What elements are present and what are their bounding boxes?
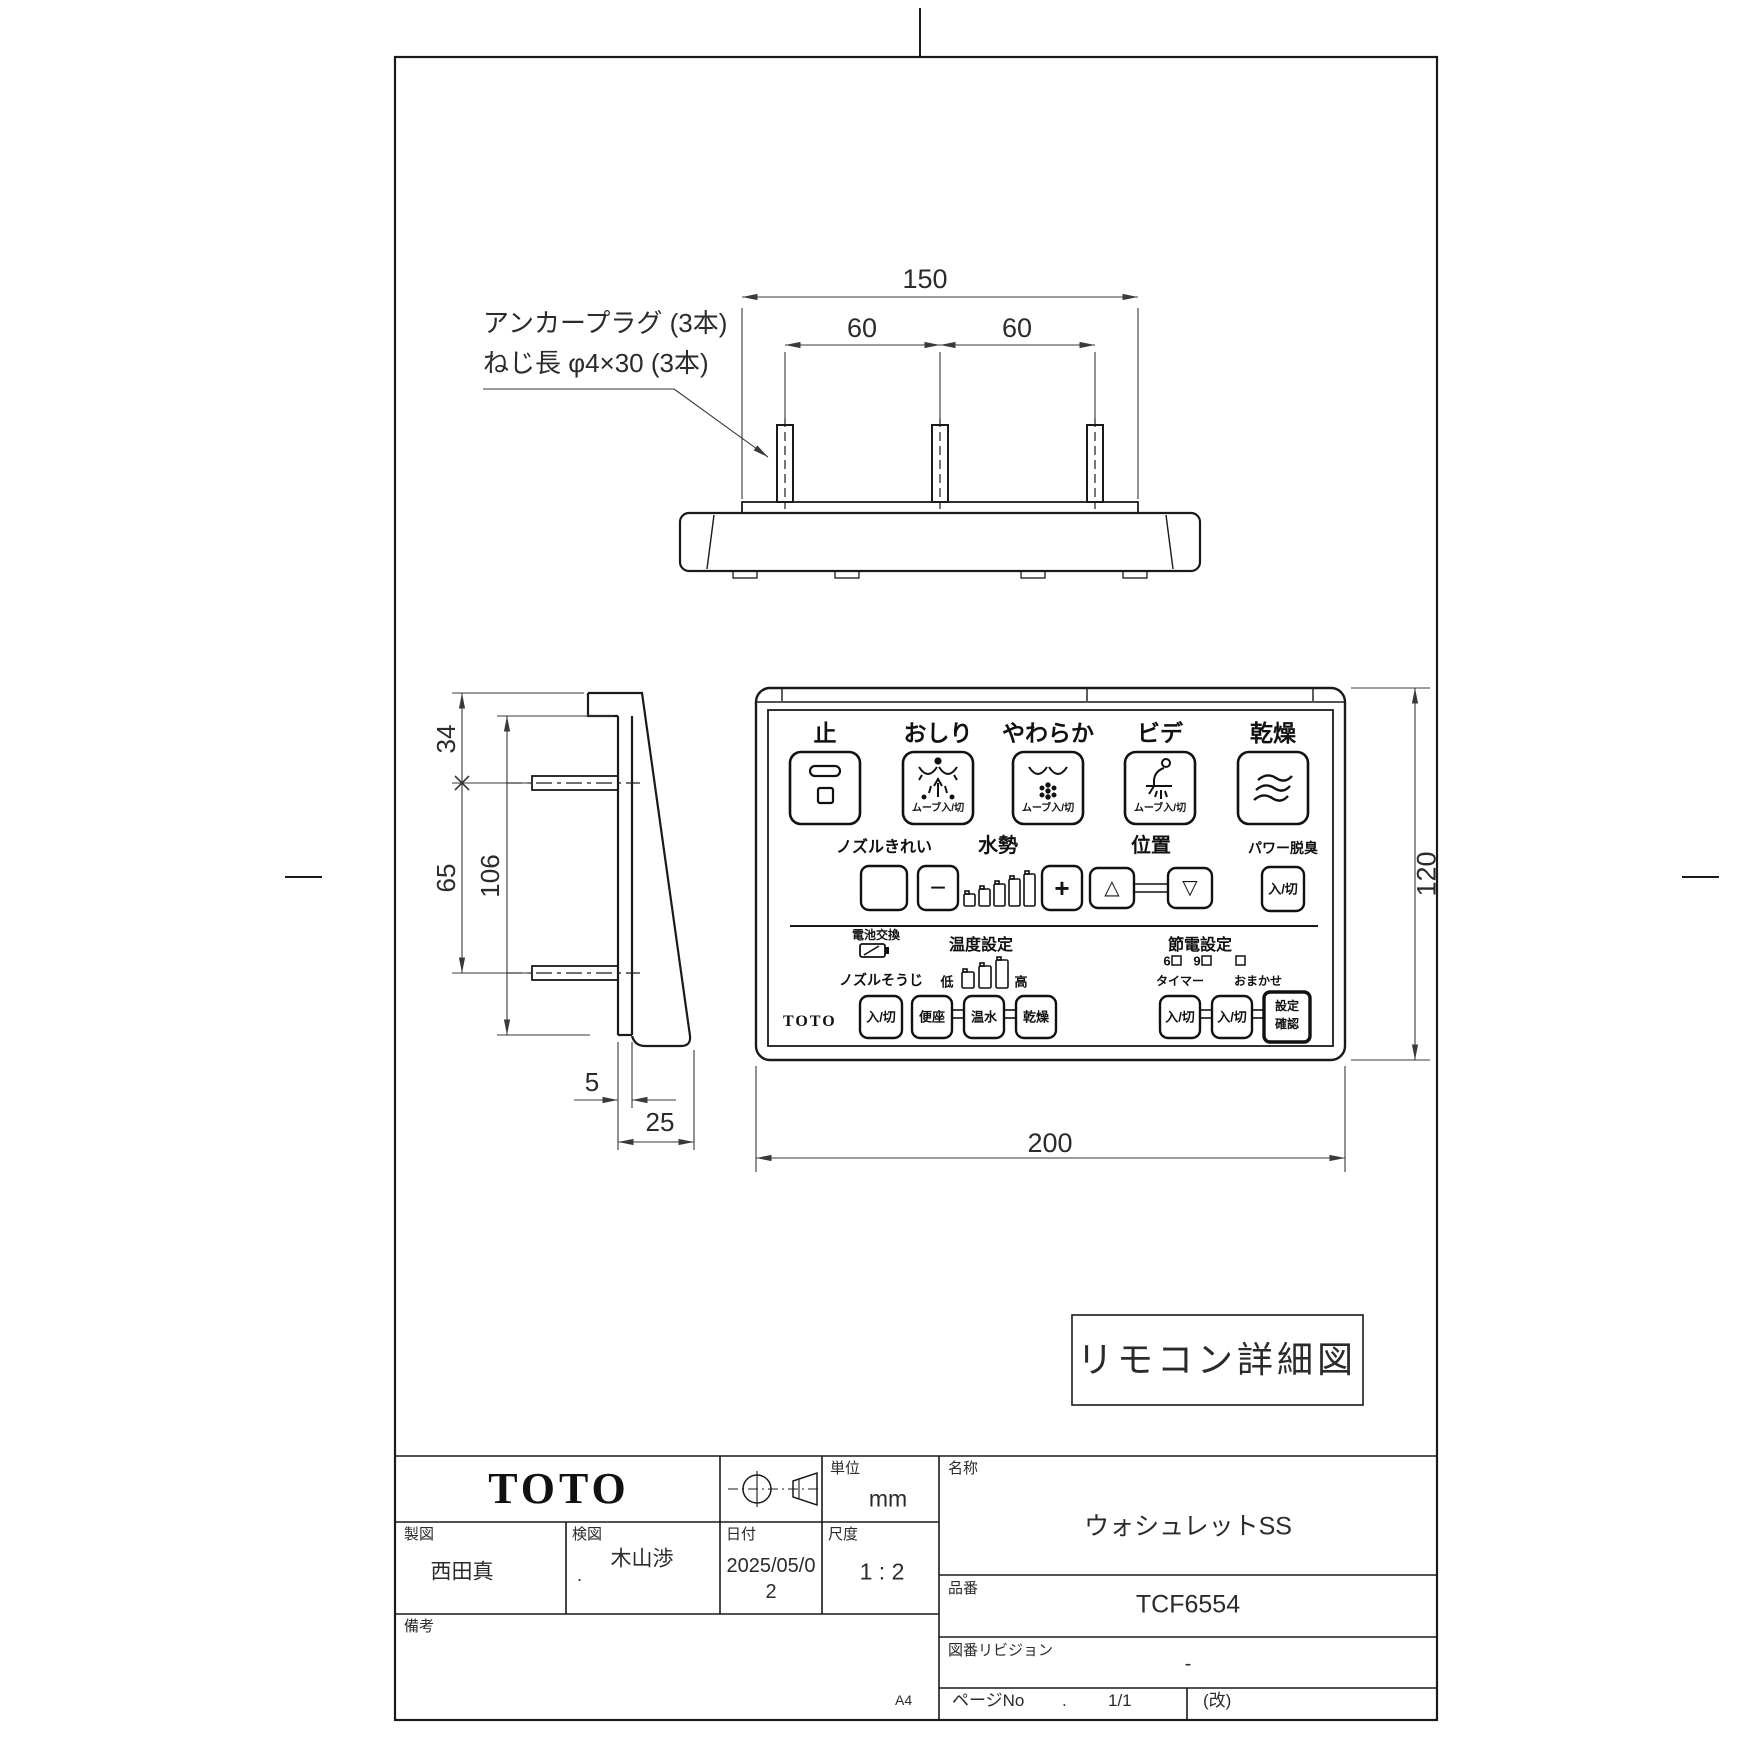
unit-value: mm xyxy=(869,1488,907,1511)
screw-length-label: ねじ長 φ4×30 (3本) xyxy=(483,350,709,376)
side-view-drawing xyxy=(506,693,690,1046)
oshiri-button-label: おしり xyxy=(904,722,973,745)
dim-200: 200 xyxy=(1027,1130,1072,1157)
name-value: ウォシュレットSS xyxy=(1084,1515,1292,1540)
date-label: 日付 xyxy=(726,1527,756,1542)
eco-nine-label: 9 xyxy=(1193,955,1200,968)
setting-confirm-label-line2: 確認 xyxy=(1275,1018,1299,1030)
soft-button-label: やわらか xyxy=(1002,722,1094,745)
top-view-drawing xyxy=(680,418,1200,578)
side-view-dimensions xyxy=(452,693,694,1150)
scale-label: 尺度 xyxy=(828,1527,858,1542)
water-pressure-label: 水勢 xyxy=(978,836,1018,856)
plus-glyph: + xyxy=(1054,875,1069,901)
oshiri-spray-icon xyxy=(919,758,957,798)
mounting-screws xyxy=(506,776,640,980)
checker-label: 検図 xyxy=(572,1527,602,1542)
soft-spray-icon xyxy=(1029,767,1067,799)
seat-button-label: 便座 xyxy=(919,1011,945,1024)
dim-60-left: 60 xyxy=(847,315,877,342)
minus-glyph: − xyxy=(930,874,946,902)
temperature-level-icon xyxy=(962,957,1008,988)
nozzle-wash-onoff-label: 入/切 xyxy=(866,1011,896,1024)
name-label: 名称 xyxy=(948,1461,978,1476)
move-toggle-label: ムーブ入/切 xyxy=(912,804,964,814)
dim-60-right: 60 xyxy=(1002,315,1032,342)
temp-high-label: 高 xyxy=(1014,976,1027,989)
bidet-button-label: ビデ xyxy=(1137,722,1183,745)
title-block-brand-logo: TOTO xyxy=(488,1467,630,1511)
move-toggle-label: ムーブ入/切 xyxy=(1134,804,1186,814)
deodorizer-label: パワー脱臭 xyxy=(1248,841,1318,855)
timer-onoff-label: 入/切 xyxy=(1165,1011,1195,1024)
page-dot: . xyxy=(1062,1692,1067,1709)
up-triangle-glyph: △ xyxy=(1104,878,1119,898)
part-number-label: 品番 xyxy=(948,1581,978,1596)
dim-34: 34 xyxy=(433,725,459,754)
down-triangle-glyph: ▽ xyxy=(1182,878,1197,898)
dry-temp-button-label: 乾燥 xyxy=(1023,1011,1049,1024)
move-toggle-label: ムーブ入/切 xyxy=(1022,804,1074,814)
checker-dot: . xyxy=(577,1566,582,1584)
bidet-icon xyxy=(1146,759,1172,799)
anchor-plug-label: アンカープラグ (3本) xyxy=(483,310,727,336)
drafter-value: 西田真 xyxy=(431,1562,494,1583)
dim-106: 106 xyxy=(477,854,503,897)
dim-150: 150 xyxy=(902,266,947,293)
drafter-label: 製図 xyxy=(404,1527,434,1542)
remote-brand-logo: TOTO xyxy=(783,1014,837,1030)
dry-waves-icon xyxy=(1254,775,1292,800)
auto-label: おまかせ xyxy=(1234,975,1282,987)
eco-setting-label: 節電設定 xyxy=(1168,938,1232,954)
remote-row2-buttons xyxy=(861,866,1304,911)
auto-onoff-label: 入/切 xyxy=(1217,1011,1247,1024)
dim-25: 25 xyxy=(646,1109,675,1135)
position-label: 位置 xyxy=(1131,836,1171,856)
page-number-label: ページNo xyxy=(952,1692,1024,1709)
eco-indicator-squares xyxy=(1172,956,1245,965)
dim-65: 65 xyxy=(433,864,459,893)
revision-mark: (改) xyxy=(1203,1692,1231,1709)
setting-confirm-label-line1: 設定 xyxy=(1275,1000,1299,1012)
remarks-label: 備考 xyxy=(404,1619,434,1634)
revision-label: 図番リビジョン xyxy=(948,1643,1053,1658)
drawing-sheet: 150 60 60 アンカープラグ (3本) ねじ長 φ4×30 (3本) 34… xyxy=(0,0,1754,1754)
eco-six-label: 6 xyxy=(1163,955,1170,968)
water-pressure-level-icon xyxy=(964,871,1035,906)
nozzle-wash-label: ノズルそうじ xyxy=(839,973,923,987)
dim-5: 5 xyxy=(585,1069,599,1095)
temp-setting-label: 温度設定 xyxy=(949,938,1013,954)
dry-button-label: 乾燥 xyxy=(1250,722,1296,745)
page-number-value: 1/1 xyxy=(1108,1692,1132,1709)
temp-low-label: 低 xyxy=(940,976,953,989)
battery-replace-label: 電池交換 xyxy=(852,929,900,941)
nozzle-clean-label: ノズルきれい xyxy=(836,840,932,856)
paper-size-label: A4 xyxy=(895,1693,912,1707)
part-number-value: TCF6554 xyxy=(1136,1593,1240,1618)
timer-label: タイマー xyxy=(1156,975,1204,987)
revision-value: - xyxy=(1185,1654,1192,1674)
stop-icon xyxy=(810,766,840,803)
projection-symbol-icon xyxy=(728,1471,820,1507)
scale-value: 1 : 2 xyxy=(860,1561,905,1584)
battery-icon xyxy=(860,944,889,957)
stop-button-label: 止 xyxy=(814,722,837,745)
nozzle-clean-button xyxy=(861,866,907,910)
dim-120: 120 xyxy=(1414,851,1441,896)
unit-label: 単位 xyxy=(830,1461,860,1476)
warm-water-button-label: 温水 xyxy=(971,1011,997,1024)
callout-title: リモコン詳細図 xyxy=(1077,1342,1357,1378)
checker-value: 木山渉 xyxy=(611,1549,674,1570)
anchor-plug-pins xyxy=(777,418,1103,509)
date-value: 2025/05/02 xyxy=(723,1553,819,1605)
deodorizer-onoff-label: 入/切 xyxy=(1268,883,1298,896)
